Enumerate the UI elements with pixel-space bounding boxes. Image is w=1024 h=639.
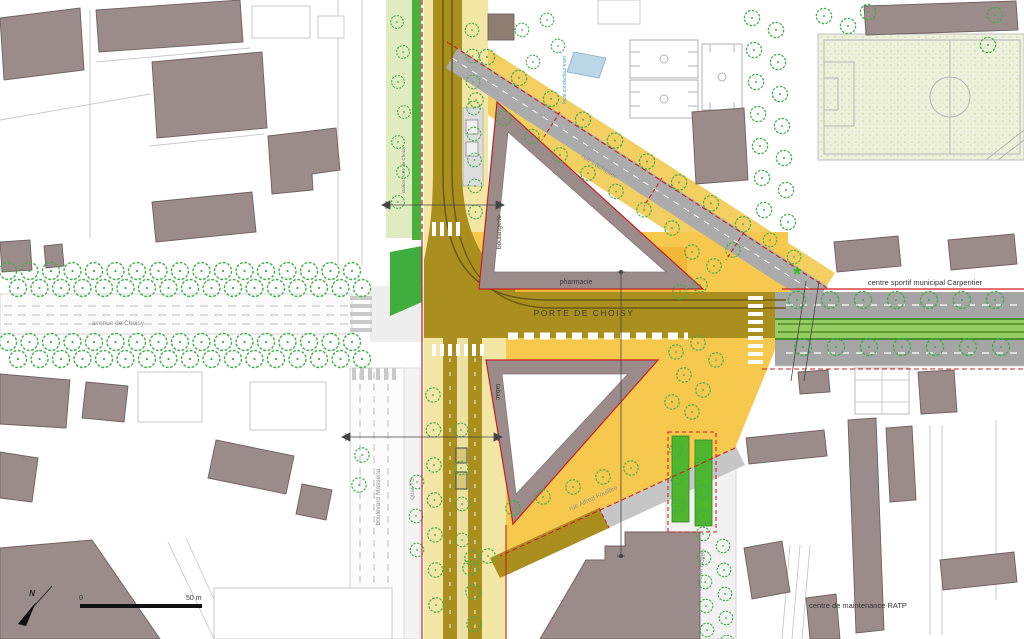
label-pharmacie: pharmacie xyxy=(560,279,593,286)
site-plan-map: PORTE DE CHOISY pharmacie boulangerie ta… xyxy=(0,0,1024,639)
label-avenue-de-choisy: avenue de Choisy xyxy=(92,320,145,327)
site-plan-page: PORTE DE CHOISY pharmacie boulangerie ta… xyxy=(0,0,1024,639)
label-centre-maintenance: centre de maintenance RATP xyxy=(809,601,907,610)
avenue-de-choisy-road xyxy=(0,294,352,334)
trees-avenue-north xyxy=(0,263,361,280)
scale-end: 50 m xyxy=(186,595,202,602)
tram-grass-median xyxy=(775,318,1024,340)
green-asterisk: * xyxy=(793,264,801,286)
trees-avenue-south xyxy=(0,334,361,351)
tram-station-platform xyxy=(463,108,483,186)
label-local-conducteur-tram: local conducteur tram xyxy=(562,56,568,104)
label-centre-sportif: centre sportif municipal Carpentier xyxy=(868,278,983,287)
label-boulangerie: boulangerie xyxy=(496,215,503,249)
tennis-court xyxy=(855,368,909,414)
label-station-porte-de-choisy: station Porte de Choisy xyxy=(401,146,406,193)
label-porte-de-choisy: PORTE DE CHOISY xyxy=(534,308,635,318)
quai-t3-platform xyxy=(404,368,420,639)
scale-start: 0 xyxy=(79,595,83,602)
sports-field xyxy=(818,34,1024,160)
building-ratp xyxy=(744,541,790,599)
label-tabac: tabac xyxy=(494,384,501,401)
label-boulevard-massena: boulevard Masséna xyxy=(375,468,382,525)
north-label: N xyxy=(29,589,35,598)
label-quai-t3: quai T3 xyxy=(409,478,416,500)
